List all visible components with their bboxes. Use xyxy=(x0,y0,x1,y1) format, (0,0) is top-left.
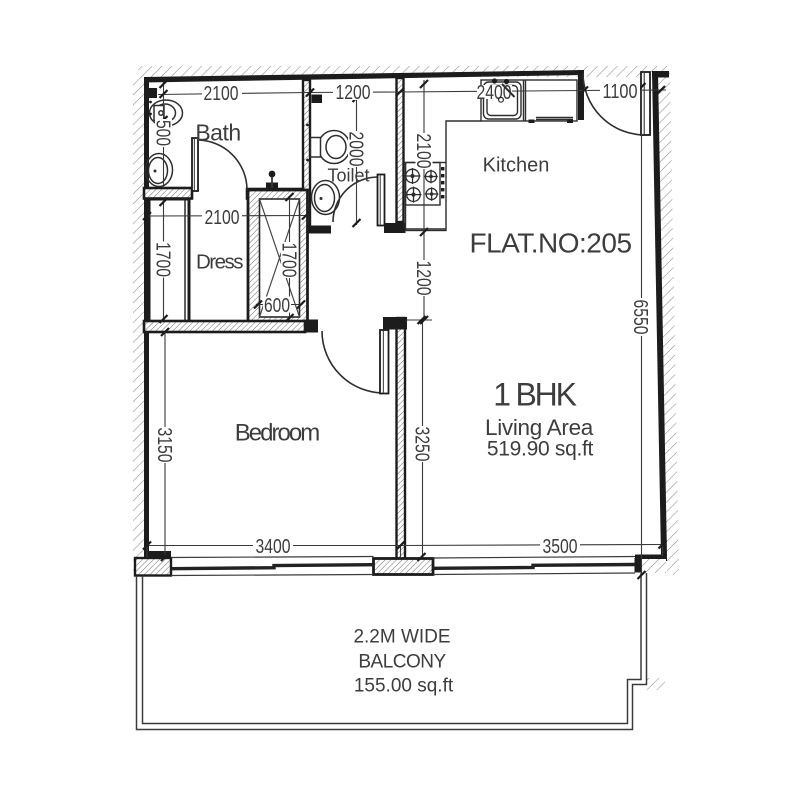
svg-text:1200: 1200 xyxy=(336,82,371,104)
svg-text:3150: 3150 xyxy=(153,428,175,463)
svg-text:BALCONY: BALCONY xyxy=(358,652,446,673)
svg-text:6550: 6550 xyxy=(629,300,651,335)
svg-text:519.90 sq.ft: 519.90 sq.ft xyxy=(487,438,594,461)
svg-text:1700: 1700 xyxy=(278,243,300,278)
svg-text:3250: 3250 xyxy=(411,427,433,462)
svg-text:Toilet: Toilet xyxy=(327,166,369,186)
svg-text:1100: 1100 xyxy=(603,81,638,103)
svg-text:2400: 2400 xyxy=(477,82,512,104)
svg-text:155.00 sq.ft: 155.00 sq.ft xyxy=(354,676,454,697)
svg-text:Kitchen: Kitchen xyxy=(483,155,550,177)
svg-text:3400: 3400 xyxy=(256,536,291,558)
svg-text:2100: 2100 xyxy=(412,134,434,169)
svg-text:Bath: Bath xyxy=(195,120,240,146)
svg-text:1200: 1200 xyxy=(412,261,434,296)
svg-text:2100: 2100 xyxy=(205,207,240,229)
svg-text:2100: 2100 xyxy=(204,83,239,105)
svg-text:2.2M WIDE: 2.2M WIDE xyxy=(353,627,450,648)
svg-text:Dress: Dress xyxy=(196,251,243,274)
svg-text:1 BHK: 1 BHK xyxy=(493,377,576,413)
svg-text:FLAT.NO:205: FLAT.NO:205 xyxy=(469,228,631,259)
svg-text:2000: 2000 xyxy=(345,132,367,167)
svg-text:Living Area: Living Area xyxy=(485,415,594,440)
svg-text:600: 600 xyxy=(264,295,290,317)
svg-text:Bedroom: Bedroom xyxy=(235,420,319,447)
svg-text:500: 500 xyxy=(152,120,174,146)
svg-text:1700: 1700 xyxy=(152,242,174,277)
svg-text:3500: 3500 xyxy=(543,536,578,558)
